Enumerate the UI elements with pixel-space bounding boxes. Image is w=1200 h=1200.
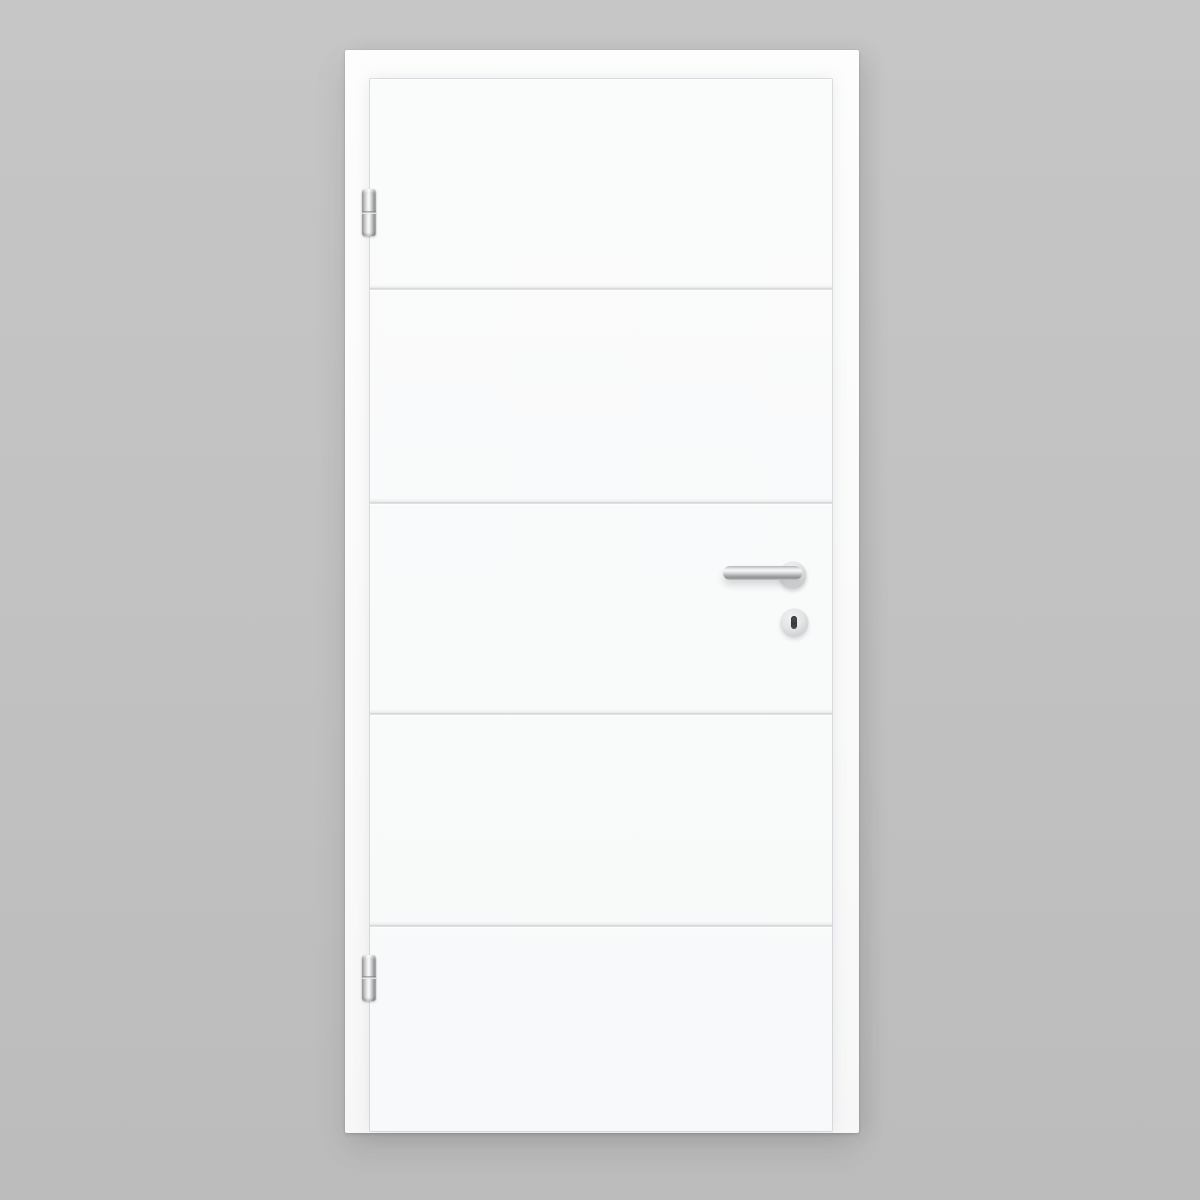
door-groove-2 — [370, 498, 832, 506]
product-photo-backdrop — [0, 0, 1200, 1200]
hinge-seam — [362, 211, 376, 214]
door-groove-3 — [370, 709, 832, 717]
door-groove-1 — [370, 284, 832, 292]
door-frame — [345, 50, 859, 1133]
door-groove-4 — [370, 921, 832, 929]
hinge-seam — [362, 976, 376, 979]
hinge-top — [362, 189, 376, 236]
keyhole-slot — [791, 616, 797, 629]
hinge-bottom — [362, 955, 376, 1001]
door-handle-lever — [723, 566, 802, 580]
door-leaf — [370, 79, 832, 1131]
